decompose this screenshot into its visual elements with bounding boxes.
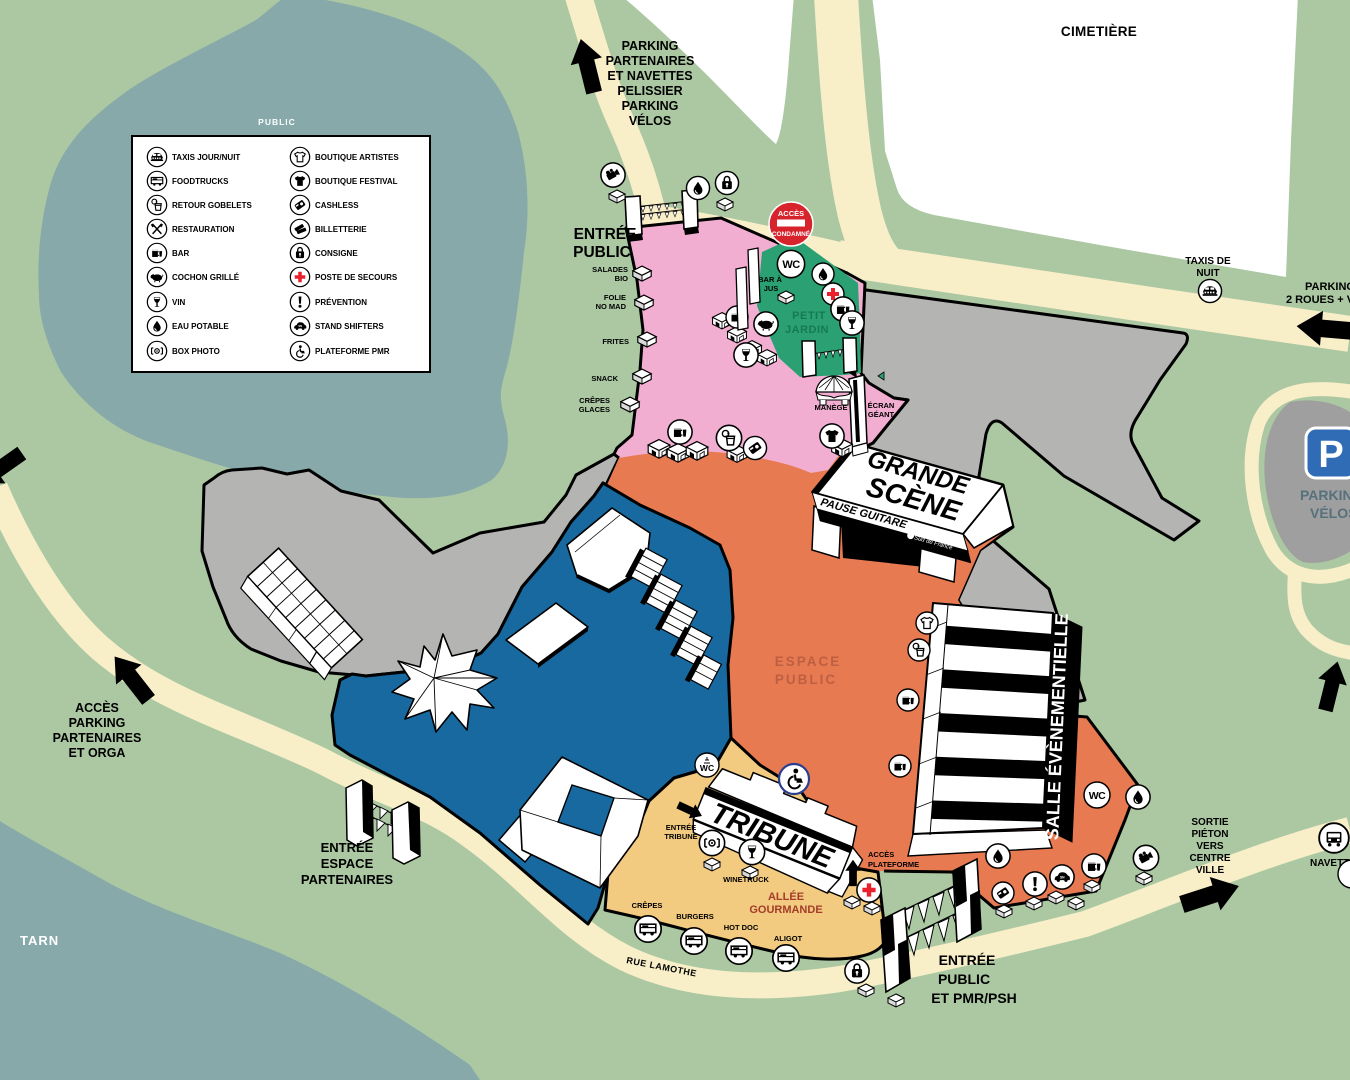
- svg-text:ENTRÉE: ENTRÉE: [666, 823, 696, 832]
- svg-text:GÉANT: GÉANT: [868, 410, 895, 419]
- svg-text:BOUTIQUE FESTIVAL: BOUTIQUE FESTIVAL: [315, 177, 398, 186]
- svg-text:JARDIN: JARDIN: [785, 324, 829, 336]
- svg-text:SNACK: SNACK: [591, 374, 618, 383]
- svg-text:PETIT: PETIT: [792, 310, 826, 322]
- svg-text:PARTENAIRES: PARTENAIRES: [53, 731, 142, 745]
- svg-text:CONSIGNE: CONSIGNE: [315, 249, 358, 258]
- svg-text:PARTENAIRES: PARTENAIRES: [606, 54, 695, 68]
- svg-text:PARKING: PARKING: [1300, 487, 1350, 503]
- svg-text:RETOUR GOBELETS: RETOUR GOBELETS: [172, 201, 253, 210]
- svg-text:COCHON GRILLÉ: COCHON GRILLÉ: [172, 273, 240, 282]
- svg-text:BAR À: BAR À: [758, 275, 782, 284]
- svg-text:PRÉVENTION: PRÉVENTION: [315, 298, 367, 307]
- svg-text:VERS: VERS: [1196, 841, 1224, 852]
- svg-text:ÉCRAN: ÉCRAN: [868, 401, 895, 410]
- svg-text:BOX PHOTO: BOX PHOTO: [172, 347, 220, 356]
- svg-text:ENTRÉE: ENTRÉE: [939, 952, 996, 968]
- svg-text:NO MAD: NO MAD: [596, 302, 627, 311]
- svg-text:PARKING: PARKING: [622, 39, 679, 53]
- svg-text:CASHLESS: CASHLESS: [315, 201, 359, 210]
- svg-text:CRÊPES: CRÊPES: [632, 901, 663, 910]
- svg-text:PIÉTON: PIÉTON: [1191, 827, 1228, 840]
- svg-text:HOT DOC: HOT DOC: [724, 923, 759, 932]
- svg-text:TRIBUNE: TRIBUNE: [664, 832, 697, 841]
- svg-text:WINETRUCK: WINETRUCK: [723, 875, 769, 884]
- svg-text:ACCÈS: ACCÈS: [778, 209, 804, 218]
- svg-text:ET NAVETTES: ET NAVETTES: [607, 69, 692, 83]
- svg-text:FOODTRUCKS: FOODTRUCKS: [172, 177, 229, 186]
- svg-text:VÉLOS: VÉLOS: [1310, 505, 1350, 521]
- svg-text:FOLIE: FOLIE: [604, 293, 626, 302]
- svg-text:ACCÈS: ACCÈS: [75, 700, 119, 715]
- svg-text:BIO: BIO: [615, 274, 629, 283]
- svg-text:CONDAMNÉ: CONDAMNÉ: [772, 229, 811, 238]
- svg-text:SALADES: SALADES: [592, 265, 628, 274]
- svg-text:BAR: BAR: [172, 249, 190, 258]
- svg-text:BOUTIQUE ARTISTES: BOUTIQUE ARTISTES: [315, 153, 399, 162]
- svg-text:JUS: JUS: [764, 284, 779, 293]
- svg-text:BURGERS: BURGERS: [676, 912, 714, 921]
- svg-text:PLATEFORME: PLATEFORME: [868, 860, 919, 869]
- svg-text:TAXIS DE: TAXIS DE: [1185, 256, 1231, 267]
- svg-text:PUBLIC: PUBLIC: [775, 672, 837, 687]
- svg-text:SORTIE: SORTIE: [1191, 817, 1229, 828]
- svg-text:P: P: [1318, 434, 1343, 476]
- svg-text:TARN: TARN: [20, 933, 59, 948]
- svg-text:PUBLIC: PUBLIC: [258, 117, 296, 127]
- svg-text:VIN: VIN: [172, 298, 186, 307]
- svg-text:MANÈGE: MANÈGE: [815, 403, 848, 412]
- svg-text:ACCÈS: ACCÈS: [868, 850, 894, 859]
- svg-text:ET ORGA: ET ORGA: [69, 746, 126, 760]
- svg-text:RESTAURATION: RESTAURATION: [172, 225, 235, 234]
- svg-text:NUIT: NUIT: [1196, 268, 1219, 279]
- svg-text:GOURMANDE: GOURMANDE: [749, 904, 822, 916]
- svg-text:VILLE: VILLE: [1196, 865, 1225, 876]
- svg-text:STAND SHIFTERS: STAND SHIFTERS: [315, 322, 384, 331]
- svg-text:CRÊPES: CRÊPES: [579, 396, 610, 405]
- svg-text:PARKING: PARKING: [69, 716, 126, 730]
- svg-text:GLACES: GLACES: [579, 405, 610, 414]
- svg-text:BILLETTERIE: BILLETTERIE: [315, 225, 367, 234]
- svg-text:ESPACE: ESPACE: [775, 654, 842, 669]
- svg-text:VÉLOS: VÉLOS: [629, 113, 671, 128]
- svg-text:ALIGOT: ALIGOT: [774, 934, 803, 943]
- svg-text:ET PMR/PSH: ET PMR/PSH: [931, 990, 1017, 1006]
- svg-text:ESPACE: ESPACE: [321, 856, 374, 871]
- svg-text:PUBLIC: PUBLIC: [573, 244, 631, 261]
- svg-text:CENTRE: CENTRE: [1189, 853, 1230, 864]
- svg-text:PARKING: PARKING: [1305, 281, 1350, 293]
- svg-text:2 ROUES + VÉLOS: 2 ROUES + VÉLOS: [1286, 293, 1350, 306]
- svg-text:PARKING: PARKING: [622, 99, 679, 113]
- svg-text:WC: WC: [700, 763, 714, 773]
- svg-text:POSTE DE SECOURS: POSTE DE SECOURS: [315, 273, 398, 282]
- svg-text:PUBLIC: PUBLIC: [938, 971, 990, 987]
- svg-text:TAXIS JOUR/NUIT: TAXIS JOUR/NUIT: [172, 153, 240, 162]
- svg-text:ENTRÉE: ENTRÉE: [321, 840, 374, 855]
- svg-text:PARTENAIRES: PARTENAIRES: [301, 872, 394, 887]
- svg-text:ALLÉE: ALLÉE: [768, 890, 804, 903]
- svg-text:PLATEFORME PMR: PLATEFORME PMR: [315, 347, 390, 356]
- svg-text:PELISSIER: PELISSIER: [617, 84, 682, 98]
- svg-text:FRITES: FRITES: [602, 337, 629, 346]
- svg-text:EAU POTABLE: EAU POTABLE: [172, 322, 229, 331]
- svg-text:ENTRÉE: ENTRÉE: [574, 226, 637, 243]
- svg-text:CIMETIÈRE: CIMETIÈRE: [1061, 24, 1137, 39]
